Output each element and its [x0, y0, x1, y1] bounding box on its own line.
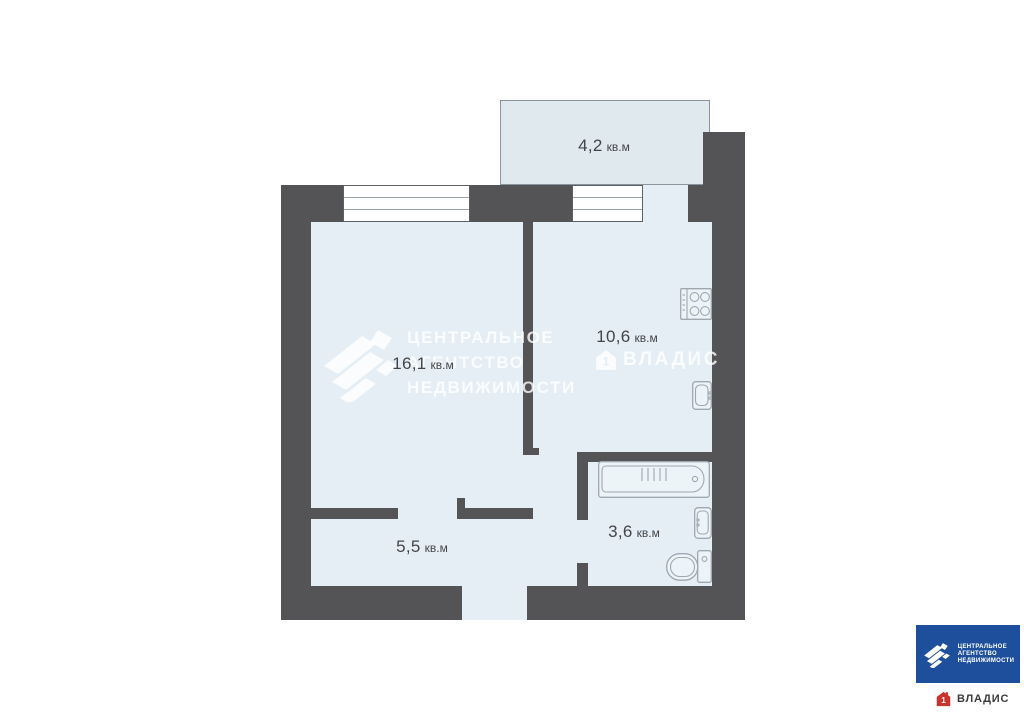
wall-living-hallway-right — [457, 508, 533, 519]
wall-right-exterior — [712, 222, 745, 620]
agency-logo-line-3: НЕДВИЖИМОСТИ — [958, 658, 1014, 665]
agency-logo-watermark-icon — [320, 324, 402, 402]
window-glass-line — [573, 209, 642, 210]
area-unit: кв.м — [637, 526, 660, 540]
area-unit: кв.м — [425, 541, 448, 555]
area-value: 10,6 — [596, 327, 630, 346]
area-unit: кв.м — [431, 358, 454, 372]
watermark-line-3: НЕДВИЖИМОСТИ — [407, 375, 576, 400]
floor-plan-page: { "colors":{ "page_bg":"#ffffff","wall":… — [0, 0, 1024, 725]
vladis-watermark: 1 ВЛАДИС — [595, 349, 720, 371]
wall-door-stop — [533, 448, 539, 455]
wall-bathroom-left-upper — [577, 452, 588, 520]
wall-bottom-right — [527, 586, 745, 620]
wall-bottom-left — [281, 586, 462, 620]
vladis-house-watermark-icon: 1 — [595, 349, 617, 371]
vladis-logo: 1 ВЛАДИС — [936, 691, 1009, 707]
vladis-watermark-label: ВЛАДИС — [623, 349, 720, 371]
vladis-logo-label: ВЛАДИС — [957, 693, 1009, 705]
window-glass-line — [344, 197, 469, 198]
area-unit: кв.м — [607, 140, 630, 154]
vladis-icon-digit: 1 — [941, 696, 946, 705]
entrance-door-opening — [462, 586, 527, 620]
svg-text:1: 1 — [603, 355, 610, 369]
agency-logo-box: ЦЕНТРАЛЬНОЕ АГЕНТСТВО НЕДВИЖИМОСТИ — [916, 625, 1020, 683]
room-label-bathroom: 3,6кв.м — [608, 522, 660, 542]
wall-top-segment-c — [688, 185, 745, 222]
wall-right-upper — [703, 132, 745, 185]
balcony-door-opening — [643, 185, 688, 222]
window-living-room — [343, 185, 470, 222]
wall-bathroom-left-lower — [577, 563, 588, 586]
area-value: 4,2 — [578, 136, 603, 155]
wall-top-segment-a — [281, 185, 343, 222]
bathtub-icon — [598, 461, 710, 498]
agency-logo-line-2: АГЕНТСТВО — [958, 651, 1014, 658]
room-label-kitchen: 10,6кв.м — [596, 327, 658, 347]
watermark-line-1: ЦЕНТРАЛЬНОЕ — [407, 325, 576, 350]
wall-top-segment-b — [470, 185, 572, 222]
agency-logo-text: ЦЕНТРАЛЬНОЕ АГЕНТСТВО НЕДВИЖИМОСТИ — [958, 644, 1014, 665]
agency-logo-icon — [922, 641, 952, 668]
area-value: 16,1 — [392, 354, 426, 373]
area-value: 5,5 — [396, 537, 421, 556]
area-value: 3,6 — [608, 522, 633, 541]
washbasin-icon — [694, 507, 712, 539]
window-glass-line — [573, 197, 642, 198]
wall-living-hallway-left — [311, 508, 398, 519]
agency-logo-line-1: ЦЕНТРАЛЬНОЕ — [958, 644, 1014, 651]
window-kitchen — [572, 185, 643, 222]
wall-door-stop — [457, 498, 465, 509]
area-unit: кв.м — [635, 331, 658, 345]
wall-left-exterior — [281, 185, 311, 620]
room-label-balcony: 4,2кв.м — [578, 136, 630, 156]
kitchen-sink-icon — [692, 381, 712, 410]
stove-icon — [680, 288, 712, 320]
room-label-living-room: 16,1кв.м — [392, 354, 454, 374]
window-glass-line — [344, 209, 469, 210]
toilet-icon — [666, 549, 712, 584]
room-label-hallway: 5,5кв.м — [396, 537, 448, 557]
vladis-house-icon: 1 — [936, 691, 951, 707]
